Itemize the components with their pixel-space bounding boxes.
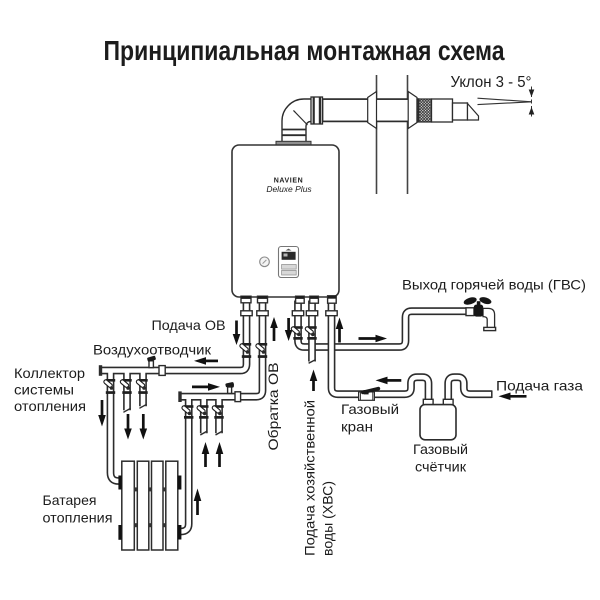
svg-text:Батарея: Батарея [43,492,97,508]
svg-text:Подача ОВ: Подача ОВ [152,317,226,333]
svg-text:кран: кран [341,419,373,435]
svg-text:Газовый: Газовый [341,401,399,417]
svg-text:Газовый: Газовый [413,441,468,457]
svg-text:Воздухоотводчик: Воздухоотводчик [93,342,212,358]
svg-text:Уклон 3 - 5°: Уклон 3 - 5° [451,74,532,91]
svg-text:счётчик: счётчик [415,459,467,475]
svg-text:системы: системы [14,382,74,398]
svg-text:Коллектор: Коллектор [14,365,85,381]
svg-text:воды (ХВС): воды (ХВС) [320,481,336,556]
svg-text:Подача хозяйственной: Подача хозяйственной [302,400,318,556]
svg-text:Обратка ОВ: Обратка ОВ [265,363,281,451]
svg-text:Принципиальная монтажная схема: Принципиальная монтажная схема [104,35,506,66]
svg-text:Выход горячей воды (ГВС): Выход горячей воды (ГВС) [402,277,586,293]
svg-text:отопления: отопления [43,510,113,526]
svg-text:Подача газа: Подача газа [496,378,583,394]
svg-text:Deluxe Plus: Deluxe Plus [266,184,312,194]
svg-text:отопления: отопления [14,398,86,414]
